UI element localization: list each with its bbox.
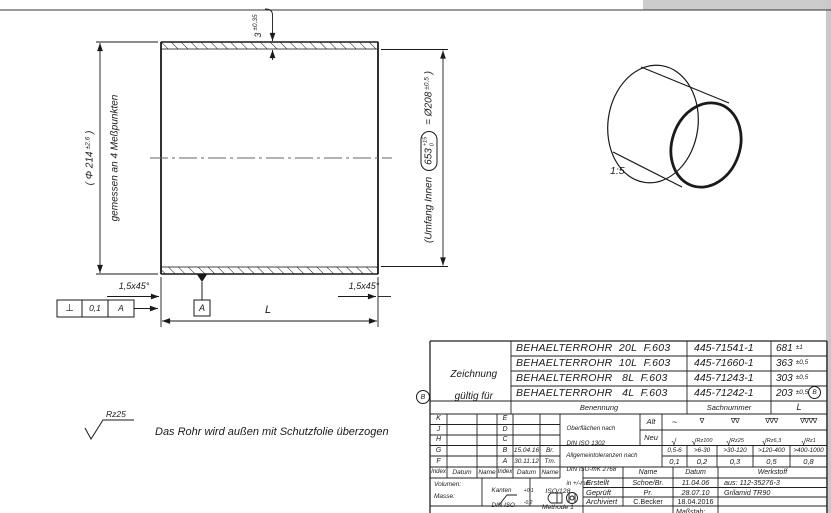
index-letter: H — [430, 435, 447, 446]
surface-standard-note: Oberflächen nach DIN ISO 1302 — [563, 417, 615, 448]
approval-date: 18.04.2016 — [673, 497, 718, 506]
tol-value: 0,8 — [790, 456, 827, 467]
approval-info: Grilamid TR90 — [724, 488, 824, 498]
index-header: Datum — [513, 467, 540, 478]
index-letter: E — [497, 414, 513, 425]
length-label: L — [256, 304, 280, 316]
variant-name: BEHAELTERROHR 4L F.603 — [516, 386, 684, 401]
inspection-oval: 653 +15 0 — [421, 131, 438, 171]
approval-name: Schoe/Br. — [623, 478, 673, 488]
masse-label: Masse: — [434, 493, 455, 500]
index-header: Index — [497, 467, 513, 478]
tol-range: >6-30 — [687, 446, 717, 457]
surface-symbol-old: ∇ — [687, 414, 717, 430]
measuring-points-note: gemessen an 4 Meßpunkten — [110, 95, 121, 222]
tol-value: 0,2 — [687, 456, 717, 467]
part-number: 445-71243-1 — [694, 371, 768, 386]
surface-symbol-old: ~ — [662, 414, 687, 430]
index-name: Br. — [540, 446, 560, 457]
approval-header-material: Werkstoff — [718, 467, 827, 478]
wall-thickness-dim: 3 ±0,35 — [253, 14, 263, 37]
index-letter: F — [430, 456, 447, 467]
drawing-sheet: 3 ±0,35 ( Φ 214 ±2,6 ) gemessen an 4 Meß… — [0, 0, 831, 513]
approval-header-name: Name — [623, 467, 673, 478]
scale-field-label-clipped: Maßstab: — [676, 509, 705, 513]
index-header: Index — [430, 467, 447, 478]
dim-equals: = Ø208 — [424, 92, 435, 125]
approval-date: 11.04.06 — [673, 478, 718, 488]
perpendicularity-icon: ⊥ — [57, 300, 82, 317]
surface-symbol-old: ∇∇∇ — [753, 414, 790, 430]
part-number: 445-71660-1 — [694, 356, 768, 371]
length-value: 681±1 — [776, 341, 824, 356]
index-letter: C — [497, 435, 513, 446]
approval-label: Archiviert — [586, 497, 622, 506]
chamfer-right-label: 1,5x45° — [336, 282, 392, 292]
variant-name: BEHAELTERROHR 10L F.603 — [516, 356, 684, 371]
dim-value: 3 — [253, 33, 263, 38]
outer-diameter-dim: ( Φ 214 ±2,6 ) — [85, 131, 96, 186]
approval-label: Erstellt — [586, 478, 622, 488]
revision-balloon: B — [416, 390, 430, 404]
approval-info: aus: 112-35276-3 — [724, 478, 824, 488]
part-number: 445-71541-1 — [694, 341, 768, 356]
index-letter: D — [497, 425, 513, 436]
approval-header-date: Datum — [673, 467, 718, 478]
tol-range: >120-400 — [753, 446, 790, 457]
approval-name: Pr. — [623, 488, 673, 498]
chamfer-left-label: 1,5x45° — [106, 282, 162, 292]
dim-label: (Umfang Innen — [424, 177, 435, 243]
valid-for-label: Zeichnung gültig für — [432, 358, 510, 402]
part-number: 445-71242-1 — [694, 386, 768, 401]
protective-foil-note: Das Rohr wird außen mit Schutzfolie über… — [155, 426, 389, 438]
variant-name: BEHAELTERROHR 20L F.603 — [516, 341, 684, 356]
tol-range: 0,5-6 — [662, 446, 687, 457]
dim-tolerance-stack: +15 0 — [423, 137, 435, 146]
roughness-value: Rz25 — [106, 410, 126, 419]
index-letter: A — [497, 456, 513, 467]
surface-symbol-old: ∇∇ — [717, 414, 753, 430]
index-letter: B — [497, 446, 513, 457]
roughness-symbol — [85, 420, 134, 439]
approval-name: C.Becker — [623, 497, 673, 506]
index-letter: G — [430, 446, 447, 457]
index-letter: K — [430, 414, 447, 425]
tol-value: 0,3 — [717, 456, 753, 467]
length-value: 303±0,5 — [776, 371, 824, 386]
index-letter: J — [430, 425, 447, 436]
tol-value: 0,1 — [662, 456, 687, 467]
col-header-name: Benennung — [511, 401, 687, 414]
index-header: Datum — [447, 467, 477, 478]
dim-tolerance: ±0,35 — [252, 14, 259, 30]
length-value: 363±0,5 — [776, 356, 824, 371]
index-name: Tm. — [540, 456, 560, 467]
tol-range: >400-1000 — [790, 446, 827, 457]
fcf-tolerance: 0,1 — [82, 300, 108, 317]
index-date: 15.04.16 — [513, 446, 540, 457]
col-header-length: L — [771, 401, 827, 414]
alt-label: Alt — [640, 414, 662, 430]
dim-tolerance: ±2,6 — [84, 137, 91, 150]
surface-symbol-old: ∇∇∇∇ — [790, 414, 827, 430]
approval-info — [724, 497, 824, 506]
fcf-datum: A — [108, 300, 134, 317]
dim-equals-tol: ±0,5 — [423, 77, 430, 90]
datum-label: A — [194, 300, 210, 316]
index-header: Name — [477, 467, 497, 478]
tol-range: >30-120 — [717, 446, 753, 457]
variant-name: BEHAELTERROHR 8L F.603 — [516, 371, 684, 386]
length-value: 203±0,5 — [776, 386, 824, 401]
projection-method-label: ISO/128 Methode 1 — [531, 480, 581, 513]
tol-value: 0,5 — [753, 456, 790, 467]
approval-label: Geprüft — [586, 488, 622, 498]
col-header-number: Sachnummer — [687, 401, 771, 414]
approval-date: 28.07.10 — [673, 488, 718, 498]
index-date: 30.11.12 — [513, 456, 540, 467]
dim-value: ( Φ 214 — [85, 151, 96, 185]
dim-value: 653 — [424, 148, 435, 165]
inner-circumference-dim: (Umfang Innen 653 +15 0 = Ø208 ±0,5 ) — [421, 71, 438, 243]
kanten-label: Kanten DIN ISO 13715 — [488, 480, 515, 513]
tube-section — [150, 42, 392, 274]
index-header: Name — [540, 467, 560, 478]
volumen-label: Volumen: — [434, 481, 461, 488]
dimension-lines — [96, 9, 448, 327]
scale-label: 1:5 — [610, 166, 625, 178]
